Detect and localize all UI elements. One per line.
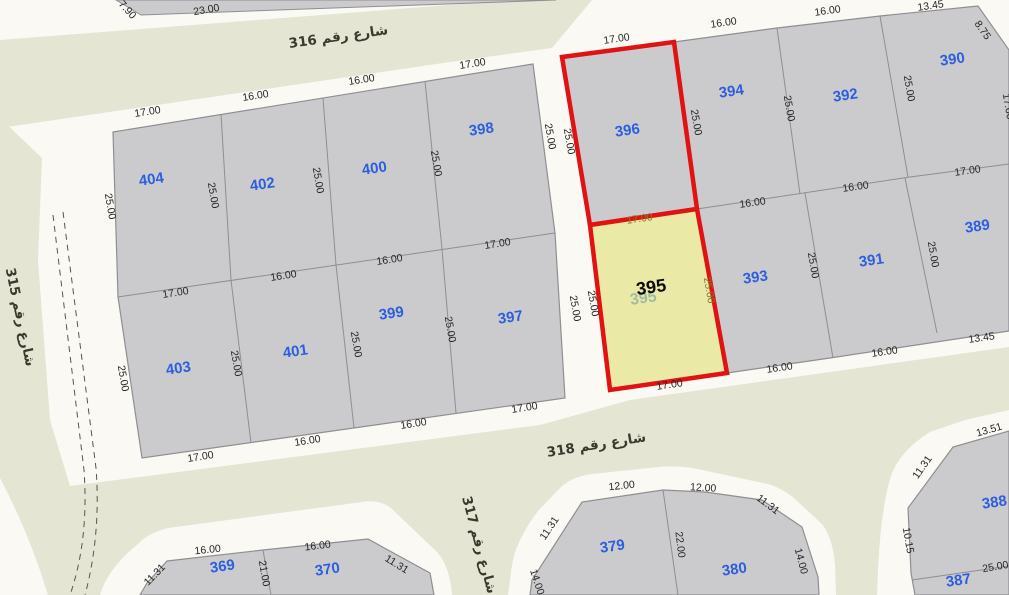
parcel-label-387: 387 <box>945 570 972 590</box>
selected-parcel-label: 395 <box>635 275 668 299</box>
dimension-label: 12.00 <box>690 481 717 494</box>
parcel-label-398: 398 <box>468 119 495 139</box>
parcel-label-397: 397 <box>497 307 524 327</box>
parcel-label-388: 388 <box>981 492 1008 512</box>
parcel-label-396: 396 <box>614 120 641 140</box>
parcel-label-390: 390 <box>939 49 966 69</box>
parcel-label-404: 404 <box>138 169 166 189</box>
block-404-397[interactable] <box>113 64 565 458</box>
parcel-label-394: 394 <box>718 81 746 101</box>
parcel-label-403: 403 <box>165 358 192 378</box>
parcel-label-392: 392 <box>832 85 859 105</box>
parcel-label-400: 400 <box>361 158 388 178</box>
parcel-label-401: 401 <box>282 341 309 361</box>
parcel-label-380: 380 <box>721 559 748 579</box>
map-viewport[interactable]: 7.9023.0017.0016.0016.0017.0025.0025.002… <box>0 0 1009 595</box>
parcel-label-369: 369 <box>209 556 236 576</box>
parcel-label-393: 393 <box>742 267 769 287</box>
parcel-label-370: 370 <box>314 559 341 579</box>
parcel-label-402: 402 <box>249 174 276 194</box>
parcel-label-379: 379 <box>599 536 626 556</box>
parcel-label-389: 389 <box>964 216 991 236</box>
parcel-label-391: 391 <box>858 250 885 270</box>
parcel-label-399: 399 <box>378 303 405 323</box>
cadastral-map-canvas[interactable]: 7.9023.0017.0016.0016.0017.0025.0025.002… <box>0 0 1009 595</box>
